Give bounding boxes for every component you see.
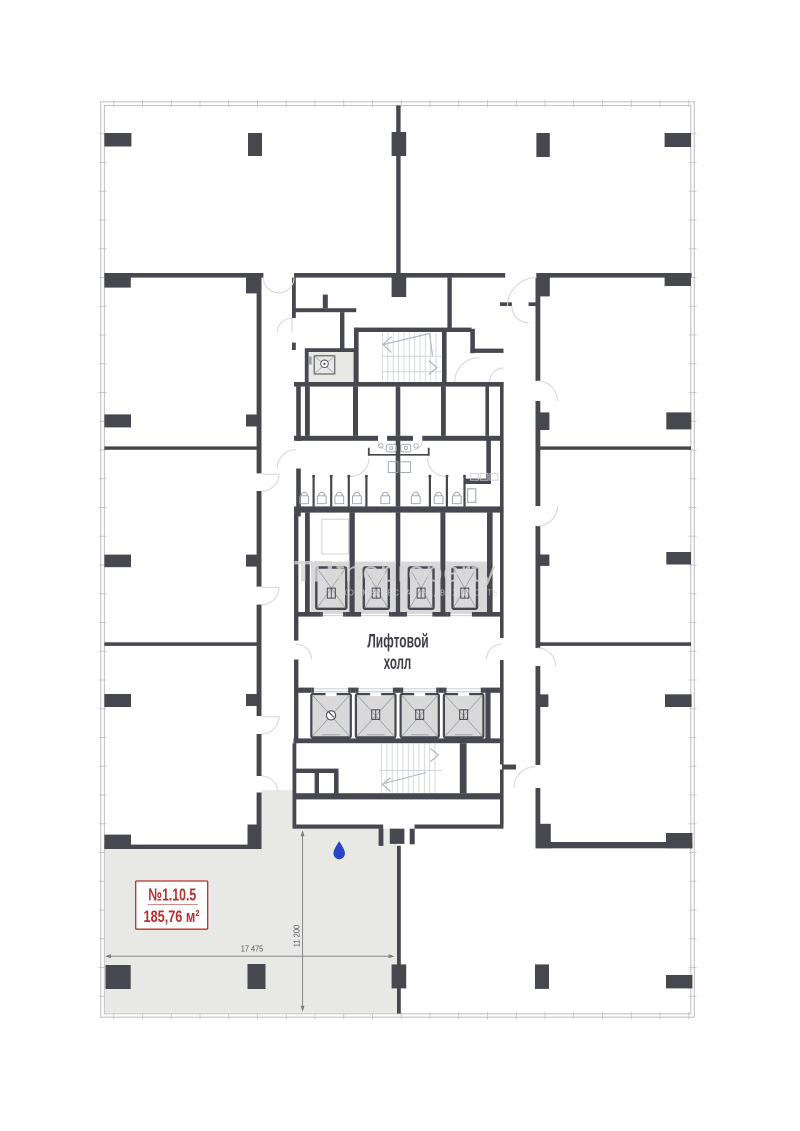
svg-text:КОММЕРЧЕСКАЯ НЕДВИЖИМОСТЬ: КОММЕРЧЕСКАЯ НЕДВИЖИМОСТЬ [343, 589, 499, 598]
svg-text:Лифтовой: Лифтовой [367, 632, 428, 653]
svg-text:17 475: 17 475 [241, 945, 264, 954]
svg-text:185,76 м²: 185,76 м² [144, 907, 200, 926]
svg-text:theproperty: theproperty [336, 557, 496, 589]
svg-text:11 200: 11 200 [293, 924, 302, 947]
svg-text:№1.10.5: №1.10.5 [148, 884, 196, 904]
svg-text:холл: холл [384, 653, 412, 674]
svg-text:ТП: ТП [294, 556, 334, 589]
